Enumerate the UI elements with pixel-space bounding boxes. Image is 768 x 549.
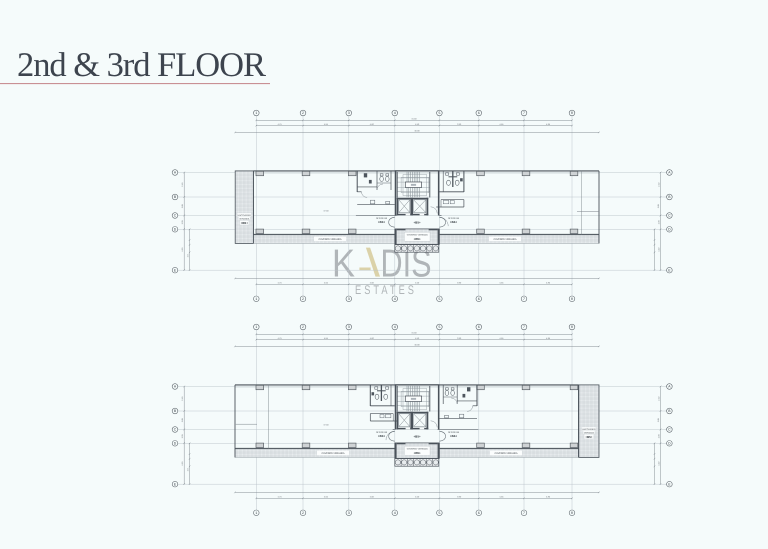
svg-text:+B3+: +B3+ (378, 220, 385, 224)
svg-text:COVERED VERANDA: COVERED VERANDA (494, 452, 518, 455)
svg-text:3: 3 (348, 325, 350, 329)
svg-text:+B5+: +B5+ (414, 451, 421, 455)
svg-text:31.50: 31.50 (411, 118, 417, 121)
svg-text:2: 2 (302, 325, 304, 329)
svg-text:7: 7 (523, 325, 525, 329)
svg-text:+B4+: +B4+ (450, 220, 457, 224)
svg-text:2: 2 (302, 297, 304, 301)
svg-text:+B5+: +B5+ (413, 434, 421, 438)
svg-text:COVERED VERANDA: COVERED VERANDA (493, 238, 517, 241)
svg-text:37.50: 37.50 (323, 209, 329, 212)
svg-text:8: 8 (571, 111, 573, 115)
svg-text:3: 3 (348, 297, 350, 301)
svg-text:6: 6 (478, 325, 480, 329)
svg-text:1: 1 (255, 297, 257, 301)
svg-text:1: 1 (255, 325, 257, 329)
svg-text:5: 5 (438, 111, 440, 115)
svg-text:46.00: 46.00 (414, 344, 420, 347)
svg-text:+B4+: +B4+ (450, 434, 457, 438)
svg-text:5: 5 (438, 297, 440, 301)
svg-text:VERANDA: VERANDA (239, 217, 250, 220)
svg-text:4: 4 (394, 325, 396, 329)
svg-text:+B5+: +B5+ (585, 435, 593, 439)
svg-text:5: 5 (438, 511, 440, 515)
svg-text:K: K (332, 243, 355, 286)
svg-text:6: 6 (478, 111, 480, 115)
svg-text:2: 2 (302, 511, 304, 515)
svg-text:+B5+: +B5+ (241, 221, 249, 225)
svg-text:8: 8 (571, 325, 573, 329)
svg-text:+B3+: +B3+ (378, 434, 385, 438)
svg-text:7: 7 (523, 297, 525, 301)
svg-text:6: 6 (478, 511, 480, 515)
svg-text:4: 4 (394, 511, 396, 515)
svg-text:1: 1 (255, 511, 257, 515)
svg-text:8: 8 (571, 297, 573, 301)
svg-text:UNCOVERED: UNCOVERED (238, 214, 252, 217)
svg-text:4: 4 (394, 111, 396, 115)
svg-text:8: 8 (571, 511, 573, 515)
svg-text:37.50: 37.50 (323, 423, 329, 426)
svg-text:7: 7 (523, 111, 525, 115)
svg-text:3: 3 (348, 111, 350, 115)
svg-text:ESTATES: ESTATES (355, 283, 417, 297)
svg-text:2nd & 3rd FLOOR: 2nd & 3rd FLOOR (17, 46, 266, 84)
svg-text:3: 3 (348, 511, 350, 515)
svg-text:+B5+: +B5+ (413, 220, 421, 224)
svg-text:5: 5 (438, 325, 440, 329)
svg-text:2: 2 (302, 111, 304, 115)
svg-text:7: 7 (523, 511, 525, 515)
svg-text:+B5+: +B5+ (414, 237, 421, 241)
svg-text:1: 1 (255, 111, 257, 115)
svg-text:UNCOVERED: UNCOVERED (582, 428, 596, 431)
svg-text:VERANDA: VERANDA (584, 431, 595, 434)
svg-text:6: 6 (478, 297, 480, 301)
svg-text:4: 4 (394, 297, 396, 301)
svg-text:COVERED VERANDA: COVERED VERANDA (318, 238, 342, 241)
svg-text:46.00: 46.00 (414, 130, 420, 133)
svg-text:COVERED VERANDA: COVERED VERANDA (321, 452, 345, 455)
svg-text:31.50: 31.50 (411, 332, 417, 335)
